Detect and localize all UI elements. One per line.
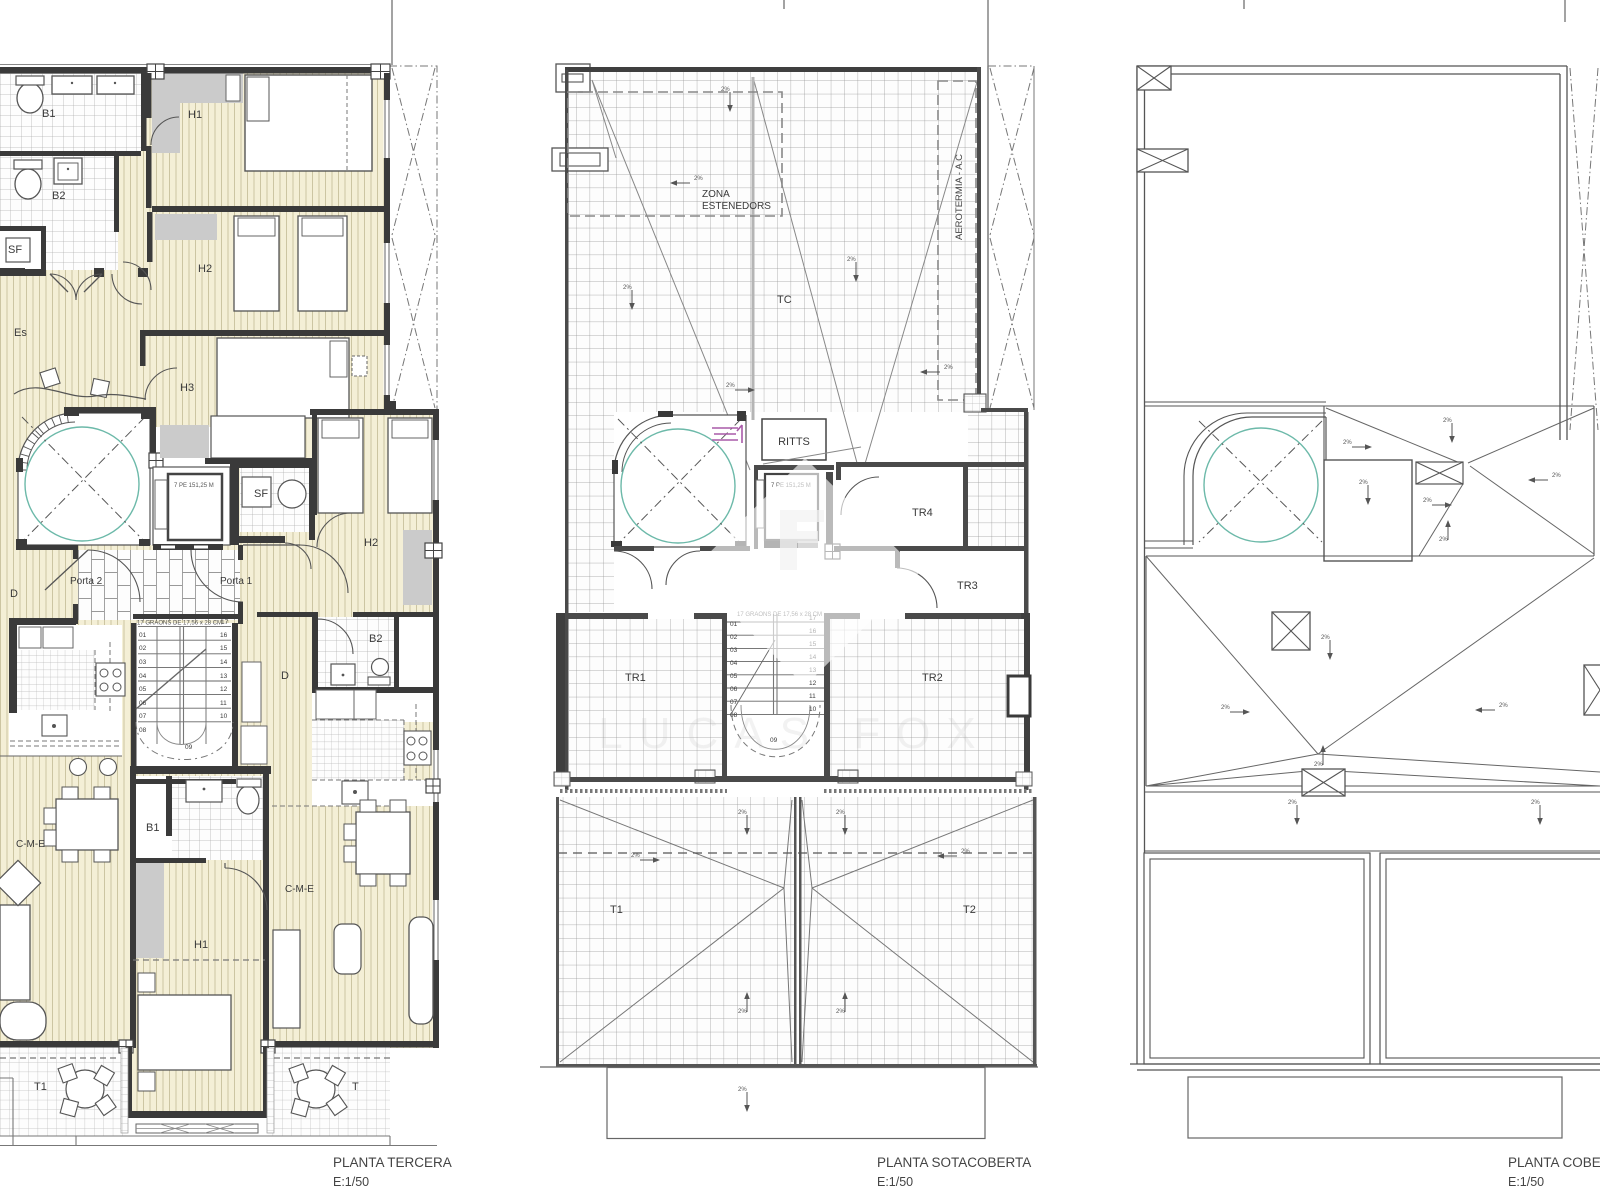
svg-text:T2: T2 [963, 904, 976, 916]
svg-text:Es: Es [14, 327, 27, 339]
svg-text:05: 05 [139, 686, 147, 693]
svg-text:12: 12 [220, 686, 228, 693]
svg-text:10: 10 [220, 713, 228, 720]
svg-text:02: 02 [139, 645, 147, 652]
svg-text:RITTS: RITTS [778, 436, 810, 448]
svg-text:13: 13 [220, 673, 228, 680]
svg-text:2%: 2% [738, 810, 747, 816]
svg-text:7 PE 151,25 M: 7 PE 151,25 M [174, 483, 214, 489]
svg-text:B1: B1 [146, 822, 159, 834]
svg-text:T1: T1 [610, 904, 623, 916]
svg-text:T: T [352, 1081, 359, 1093]
svg-text:2%: 2% [721, 87, 730, 93]
svg-text:ZONA: ZONA [702, 189, 730, 200]
svg-text:TR2: TR2 [922, 672, 943, 684]
svg-text:2%: 2% [944, 365, 953, 371]
svg-text:PLANTA SOTACOBERTA: PLANTA SOTACOBERTA [877, 1155, 1031, 1170]
svg-text:2%: 2% [1343, 440, 1352, 446]
svg-text:E:1/50: E:1/50 [877, 1175, 913, 1189]
svg-text:06: 06 [730, 686, 738, 693]
svg-text:2%: 2% [726, 383, 735, 389]
svg-text:07: 07 [730, 699, 738, 706]
svg-text:TR4: TR4 [912, 507, 933, 519]
svg-text:D: D [10, 588, 18, 600]
svg-text:08: 08 [139, 727, 147, 734]
svg-text:D: D [281, 670, 289, 682]
svg-text:2%: 2% [836, 810, 845, 816]
svg-text:SF: SF [8, 244, 22, 256]
svg-text:2%: 2% [961, 849, 970, 855]
svg-text:H2: H2 [364, 537, 378, 549]
svg-text:09: 09 [185, 744, 193, 751]
svg-text:H1: H1 [188, 109, 202, 121]
svg-text:Porta 2: Porta 2 [70, 576, 103, 587]
svg-text:2%: 2% [1321, 635, 1330, 641]
svg-text:PLANTA COBERTA: PLANTA COBERTA [1508, 1155, 1600, 1170]
svg-text:TR3: TR3 [957, 580, 978, 592]
svg-text:2%: 2% [836, 1009, 845, 1015]
svg-text:Porta 1: Porta 1 [220, 576, 253, 587]
svg-text:05: 05 [730, 673, 738, 680]
svg-text:2%: 2% [1314, 762, 1323, 768]
svg-text:2%: 2% [631, 853, 640, 859]
svg-text:2%: 2% [738, 1087, 747, 1093]
svg-text:07: 07 [139, 713, 147, 720]
svg-text:B1: B1 [42, 108, 55, 120]
svg-text:AEROTERMIA - A.C: AEROTERMIA - A.C [954, 154, 965, 240]
svg-text:TR1: TR1 [625, 672, 646, 684]
svg-text:14: 14 [220, 659, 228, 666]
svg-text:2%: 2% [1499, 703, 1508, 709]
svg-text:E:1/50: E:1/50 [1508, 1175, 1544, 1189]
svg-text:2%: 2% [1552, 473, 1561, 479]
svg-text:01: 01 [139, 632, 147, 639]
svg-text:03: 03 [730, 647, 738, 654]
svg-text:2%: 2% [1439, 537, 1448, 543]
svg-text:03: 03 [139, 659, 147, 666]
svg-text:2%: 2% [1359, 480, 1368, 486]
svg-text:H2: H2 [198, 263, 212, 275]
svg-text:2%: 2% [1221, 705, 1230, 711]
svg-text:SF: SF [254, 488, 268, 500]
svg-text:C-M-E: C-M-E [285, 884, 314, 895]
svg-text:LUCAS FOX: LUCAS FOX [598, 709, 991, 758]
svg-text:TC: TC [777, 294, 792, 306]
svg-text:ESTENEDORS: ESTENEDORS [702, 201, 771, 212]
svg-text:2%: 2% [623, 285, 632, 291]
svg-text:B2: B2 [369, 633, 382, 645]
svg-text:16: 16 [220, 632, 228, 639]
svg-text:2%: 2% [738, 1009, 747, 1015]
svg-text:01: 01 [730, 621, 738, 628]
svg-text:E:1/50: E:1/50 [333, 1175, 369, 1189]
svg-text:11: 11 [220, 700, 227, 707]
svg-text:PLANTA TERCERA: PLANTA TERCERA [333, 1155, 452, 1170]
svg-text:2%: 2% [1423, 498, 1432, 504]
svg-text:04: 04 [139, 673, 147, 680]
svg-text:15: 15 [220, 645, 228, 652]
svg-text:2%: 2% [847, 257, 856, 263]
svg-text:12: 12 [809, 680, 817, 687]
svg-text:2%: 2% [1288, 800, 1297, 806]
svg-text:B2: B2 [52, 190, 65, 202]
svg-text:T1: T1 [34, 1081, 47, 1093]
svg-text:17 GRAONS DE 17,56 x 28 CM: 17 GRAONS DE 17,56 x 28 CM [137, 621, 222, 627]
svg-text:02: 02 [730, 634, 738, 641]
svg-text:17: 17 [221, 619, 229, 626]
svg-text:04: 04 [730, 660, 738, 667]
svg-text:2%: 2% [694, 176, 703, 182]
svg-text:06: 06 [139, 700, 147, 707]
svg-text:2%: 2% [1443, 418, 1452, 424]
svg-text:11: 11 [809, 693, 816, 700]
svg-text:H3: H3 [180, 382, 194, 394]
svg-text:2%: 2% [1531, 800, 1540, 806]
svg-text:H1: H1 [194, 939, 208, 951]
svg-text:C-M-E: C-M-E [16, 839, 45, 850]
